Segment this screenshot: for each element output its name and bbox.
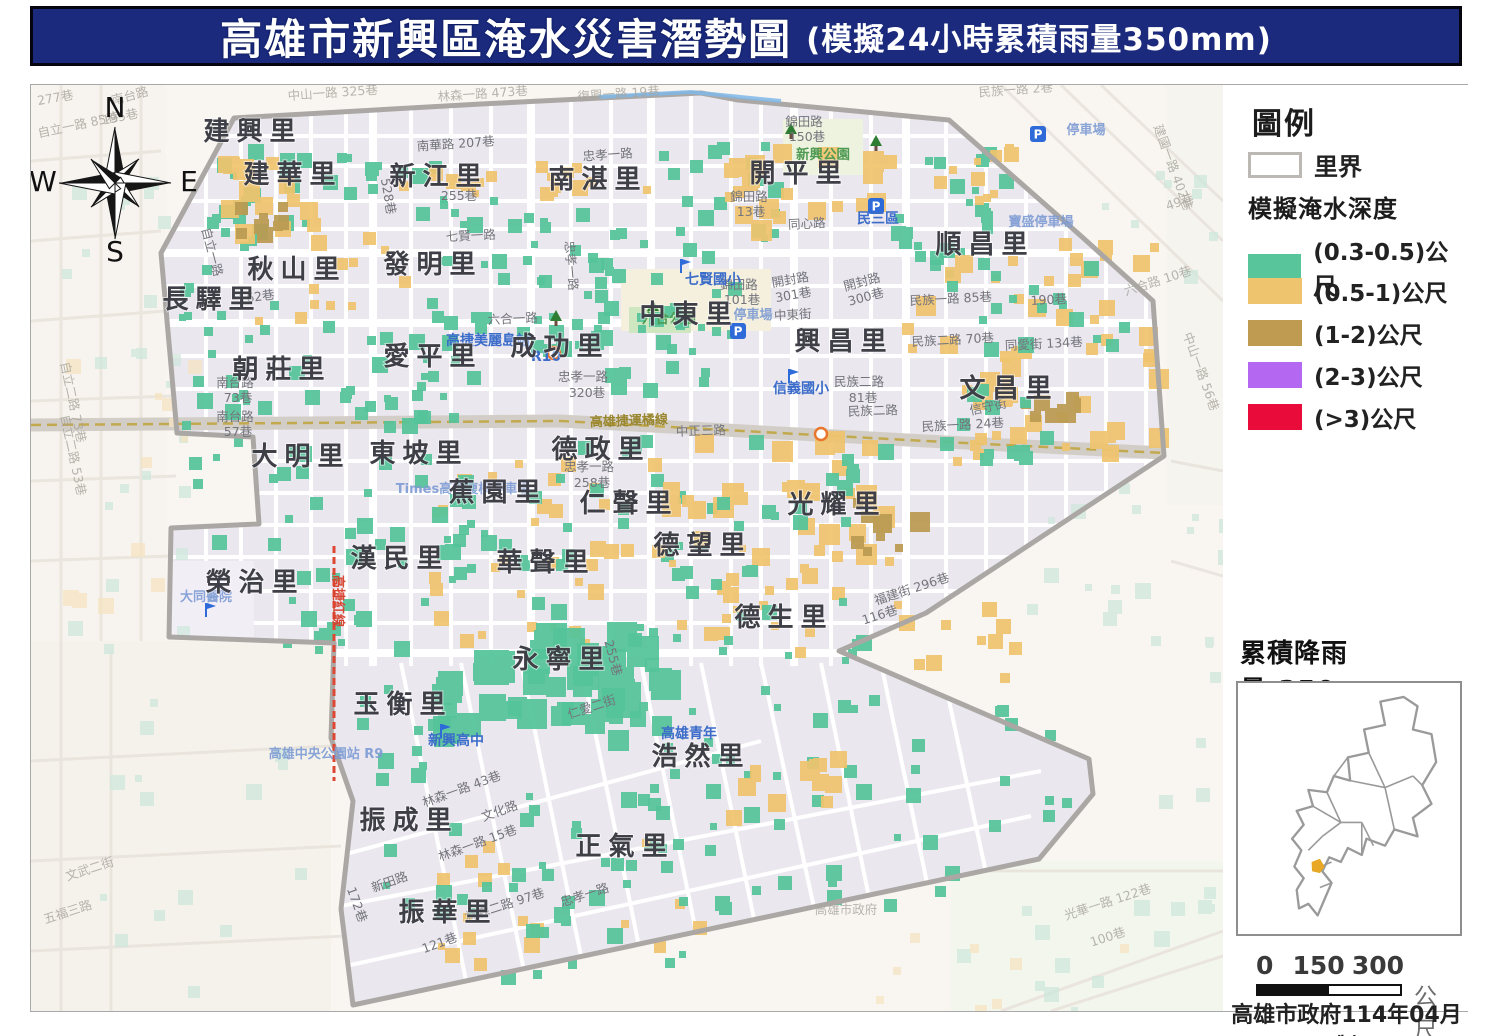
blue-label: 新興高中: [428, 732, 484, 749]
tree-trunk: [875, 146, 878, 151]
flood-cell: [575, 578, 583, 586]
st-label: 六合一路: [487, 310, 538, 328]
flood-cell: [533, 970, 542, 979]
flood-cell: [1010, 958, 1022, 970]
flood-cell: [311, 235, 327, 251]
parking-letter: P: [1034, 128, 1043, 142]
village-label: 新江里: [389, 161, 488, 192]
flood-cell: [923, 835, 938, 850]
flood-cell: [141, 457, 152, 468]
flood-cell: [992, 999, 1002, 1009]
flood-cell: [752, 886, 761, 895]
flood-cell: [676, 227, 685, 236]
village-label: 順昌里: [935, 230, 1034, 260]
flood-cell: [572, 319, 583, 330]
flood-cell: [451, 209, 459, 217]
flood-cell: [1068, 274, 1081, 287]
flood-cell: [463, 932, 476, 945]
depth-label-3: (2-3)公尺: [1314, 358, 1423, 392]
flood-cell: [105, 502, 113, 510]
flood-cell: [453, 534, 466, 547]
flood-cell: [706, 784, 721, 799]
flood-cell: [432, 507, 448, 523]
flood-cell: [710, 823, 717, 830]
flood-cell: [1022, 906, 1032, 916]
flood-cell: [744, 807, 760, 823]
village-label: 德望里: [653, 531, 752, 561]
flood-cell: [432, 583, 443, 594]
village-label: 浩然里: [651, 741, 750, 772]
st-label: 南台路: [216, 409, 254, 424]
flood-cell: [142, 471, 151, 480]
st-label: 73巷: [224, 390, 253, 405]
depth-label-2: (1-2)公尺: [1314, 316, 1423, 350]
flood-cell: [598, 312, 610, 324]
flood-cell: [726, 810, 742, 826]
st-label: 錦田路: [785, 114, 823, 129]
flood-cell: [445, 948, 460, 963]
bg-tint: [31, 641, 331, 1011]
flood-cell: [665, 958, 675, 968]
scale-bar: 0 150 300 公尺: [1256, 951, 1456, 996]
flood-cell: [612, 269, 626, 283]
flood-cell: [1156, 171, 1165, 180]
flood-cell: [287, 194, 300, 207]
flood-cell: [761, 686, 770, 695]
flood-cell: [934, 176, 947, 189]
flood-cell: [1196, 738, 1206, 748]
boundary-swatch: [1248, 152, 1302, 178]
flood-cell: [667, 344, 677, 354]
flood-cell: [935, 886, 946, 897]
flood-cell: [1093, 335, 1101, 343]
flag-pole: [680, 259, 682, 273]
flood-cell: [621, 920, 629, 928]
flood-cell: [941, 620, 951, 630]
flood-cell: [773, 772, 781, 780]
flood-cell: [643, 383, 658, 398]
flood-cell: [481, 535, 497, 551]
village-label: 榮治里: [205, 568, 304, 598]
st-label: 民族二路: [834, 374, 885, 389]
flood-cell: [515, 460, 523, 468]
flood-cell: [402, 418, 418, 434]
flood-cell: [814, 545, 825, 556]
flood-cell: [189, 457, 202, 470]
flood-cell: [997, 705, 1009, 717]
flood-cell: [532, 597, 545, 610]
blue-label: 民三區: [857, 211, 899, 227]
page-title: 高雄市新興區淹水災害潛勢圖: [220, 6, 792, 67]
flood-cell: [915, 251, 926, 262]
flood-cell: [411, 768, 426, 783]
flood-cell: [1062, 798, 1072, 808]
flood-cell: [1106, 339, 1119, 352]
flood-cell: [412, 390, 423, 401]
flood-cell: [394, 641, 410, 657]
flood-cell: [520, 813, 534, 827]
flood-cell: [115, 934, 128, 947]
flood-cell: [661, 861, 673, 873]
flood-cell: [1044, 276, 1054, 286]
page-subtitle: (模擬24小時累積雨量350mm): [806, 14, 1272, 59]
flood-cell: [950, 179, 965, 194]
flood-cell: [235, 202, 248, 215]
flood-cell: [659, 151, 669, 161]
flood-cell: [540, 218, 548, 226]
flood-cell: [679, 897, 688, 906]
flood-cell: [819, 524, 840, 545]
flood-cell: [839, 598, 847, 606]
flood-cell: [460, 221, 467, 228]
flood-cell: [773, 211, 786, 224]
flood-cell: [895, 544, 903, 552]
flood-cell: [1218, 550, 1223, 565]
flood-cell: [440, 393, 447, 400]
flood-cell: [651, 670, 681, 700]
flood-cell: [479, 694, 506, 721]
flood-cell: [68, 621, 83, 636]
flood-cell: [966, 199, 973, 206]
flood-cell: [1187, 527, 1194, 534]
flood-cell: [683, 243, 697, 257]
flood-cell: [682, 196, 693, 207]
flood-cell: [911, 765, 920, 774]
flood-cell: [131, 543, 145, 557]
flood-cell: [1043, 810, 1055, 822]
flood-cell: [376, 773, 389, 786]
flood-cell: [734, 521, 744, 531]
village-label: 秋山里: [247, 255, 346, 285]
flag-pole: [205, 603, 207, 617]
flood-cell: [349, 258, 358, 267]
flood-cell: [637, 624, 644, 631]
flood-cell: [1085, 584, 1092, 591]
bluef-label: 停車場: [733, 307, 772, 323]
flood-cell: [679, 951, 686, 958]
flood-cell: [179, 486, 190, 497]
flood-cell: [490, 197, 498, 205]
flood-cell: [991, 303, 1002, 314]
flood-cell: [1048, 517, 1055, 524]
st-label: 中正三路: [676, 422, 727, 439]
flood-cell: [63, 590, 79, 606]
flood-cell: [144, 295, 157, 308]
flood-cell: [563, 523, 572, 532]
flood-cell: [181, 435, 188, 442]
flood-cell: [1092, 976, 1104, 988]
flood-cell: [576, 208, 590, 222]
flood-cell: [254, 219, 269, 234]
flood-cell: [572, 821, 581, 830]
flood-cell: [104, 644, 114, 654]
flood-cell: [268, 538, 281, 551]
flood-cell: [323, 321, 335, 333]
village-label: 蕉園里: [448, 478, 547, 508]
flood-cell: [444, 316, 458, 330]
flood-cell: [991, 271, 1001, 281]
flood-cell: [680, 566, 693, 579]
flood-cell: [295, 868, 307, 880]
flood-cell: [1044, 568, 1059, 583]
flood-cell: [689, 348, 696, 355]
st-label: 57巷: [224, 424, 253, 439]
flood-cell: [690, 160, 703, 173]
st-label: 150巷: [789, 129, 826, 144]
flood-cell: [702, 251, 715, 264]
village-label: 東坡里: [369, 439, 468, 469]
flood-cell: [910, 933, 920, 943]
flood-cell: [357, 518, 373, 534]
depth-label-4: (>3)公尺: [1314, 400, 1416, 434]
flood-cell: [610, 230, 620, 240]
flood-cell: [774, 819, 785, 830]
flood-cell: [62, 269, 72, 279]
flood-cell: [154, 910, 165, 921]
village-label: 文昌里: [959, 373, 1058, 404]
flood-cell: [345, 528, 356, 539]
flood-cell: [1108, 600, 1122, 614]
village-label: 仁聲里: [579, 489, 678, 519]
flood-cell: [765, 586, 774, 595]
flood-cell: [830, 751, 847, 768]
flood-cell: [996, 619, 1011, 634]
flood-cell: [677, 620, 687, 630]
blue-label: 七賢國小: [685, 272, 741, 288]
flood-cell: [182, 421, 191, 430]
flood-cell: [869, 695, 880, 706]
flood-cell: [781, 188, 793, 200]
flood-cell: [828, 878, 837, 887]
flood-cell: [549, 504, 563, 518]
legend-row: (1-2)公尺: [1248, 316, 1423, 350]
flood-cell: [914, 242, 922, 250]
flood-map-canvas: PPP277巷南台路自立一路 85巷195巷中山一路 325巷林森一路 473巷…: [31, 85, 1223, 1011]
flood-cell: [314, 631, 323, 640]
mrt-station-icon: [815, 428, 827, 440]
flood-cell: [555, 604, 563, 612]
flood-cell: [176, 548, 188, 560]
flood-cell: [750, 765, 761, 776]
flood-cell: [883, 155, 897, 169]
flood-cell: [719, 647, 727, 655]
flood-cell: [1090, 315, 1099, 324]
flood-cell: [701, 368, 710, 377]
flood-cell: [307, 218, 321, 232]
flood-cell: [136, 348, 147, 359]
flood-cell: [155, 393, 162, 400]
flood-cell: [539, 862, 546, 869]
flood-cell: [621, 792, 637, 808]
flood-cell: [478, 631, 486, 639]
flood-cell: [348, 302, 356, 310]
flood-cell: [878, 444, 894, 460]
flood-cell: [326, 301, 335, 310]
flood-cell: [989, 820, 1001, 832]
flood-cell: [178, 890, 193, 905]
flood-cell: [270, 301, 279, 310]
village-label: 朝莊里: [232, 354, 331, 385]
flood-cell: [260, 325, 270, 335]
village-label: 長驛里: [162, 285, 261, 315]
flood-cell: [785, 652, 792, 659]
bluef-label: 高雄中央公園站 R9: [269, 746, 384, 762]
flood-cell: [315, 646, 323, 654]
flood-cell: [972, 187, 979, 194]
flood-cell: [384, 421, 396, 433]
district-line: [1334, 757, 1348, 776]
flood-cell: [838, 700, 851, 713]
flood-cell: [140, 721, 154, 735]
flood-cell: [1055, 958, 1070, 973]
flood-cell: [705, 845, 716, 856]
flood-cell: [717, 497, 730, 510]
flood-cell: [437, 873, 450, 886]
flood-cell: [278, 202, 288, 212]
boundary-label: 里界: [1314, 147, 1362, 182]
flood-cell: [338, 639, 345, 646]
flood-cell: [1030, 411, 1041, 422]
flood-cell: [914, 659, 925, 670]
flood-cell: [953, 457, 962, 466]
flood-cell: [774, 704, 781, 711]
flood-cell: [723, 587, 739, 603]
flood-cell: [1027, 604, 1038, 615]
flood-cell: [300, 202, 318, 220]
flood-cell: [449, 576, 456, 583]
st-label: 258巷: [574, 475, 611, 490]
flood-cell: [638, 794, 650, 806]
flood-cell: [340, 392, 351, 403]
flood-cell: [1159, 795, 1173, 809]
flood-cell: [498, 863, 510, 875]
flood-cell: [1151, 636, 1161, 646]
st-label: 七賢一路: [445, 227, 496, 245]
flood-cell: [531, 518, 539, 526]
flood-cell: [884, 899, 897, 912]
flood-cell: [607, 928, 623, 944]
flood-cell: [699, 377, 709, 387]
flood-cell: [517, 699, 547, 729]
flood-cell: [651, 474, 664, 487]
flood-cell: [316, 568, 330, 582]
flood-cell: [761, 142, 770, 151]
village-label: 德生里: [734, 603, 833, 633]
flood-cell: [481, 530, 488, 537]
flood-cell: [1198, 900, 1212, 914]
flood-cell: [509, 883, 518, 892]
mrt-label: 高雄捷運橘線: [590, 412, 670, 431]
flood-cell: [1084, 261, 1099, 276]
flood-cell: [539, 275, 552, 288]
flood-cell: [1040, 431, 1054, 445]
depth-heading: 模擬淹水深度: [1248, 189, 1398, 224]
flood-cell: [474, 958, 487, 971]
flood-cell: [979, 316, 987, 324]
flood-cell: [618, 518, 629, 529]
flood-cell: [274, 215, 289, 230]
village-label: 中東里: [639, 300, 738, 330]
flood-cell: [536, 161, 548, 173]
flood-cell: [584, 291, 592, 299]
st-label: 190巷: [1030, 291, 1068, 308]
flood-cell: [197, 393, 213, 409]
flood-cell: [726, 573, 739, 586]
flood-cell: [980, 453, 993, 466]
scale-tick-0: 0: [1256, 951, 1273, 980]
flood-cell: [1209, 232, 1218, 241]
flood-cell: [82, 249, 90, 257]
st-label: 忠孝一路: [558, 369, 609, 384]
flood-cell: [523, 256, 532, 265]
flood-cell: [850, 705, 858, 713]
legend-boundary-row: 里界: [1248, 147, 1362, 182]
scale-tick-150: 150: [1293, 951, 1345, 980]
flood-cell: [668, 168, 680, 180]
flood-cell: [344, 154, 352, 162]
village-label: 漢民里: [350, 544, 449, 574]
flood-cell: [1171, 902, 1185, 916]
flood-cell: [1194, 175, 1207, 188]
depth-swatch-4: [1248, 404, 1302, 430]
st-label: 13巷: [737, 204, 766, 219]
blue-label: 高雄青年: [661, 725, 717, 742]
scale-bar-fill: [1258, 986, 1329, 994]
flood-cell: [213, 454, 220, 461]
village-label: 永寧里: [512, 644, 611, 675]
flood-cell: [656, 808, 668, 820]
flood-cell: [724, 636, 733, 645]
flood-cell: [1107, 422, 1125, 440]
flood-cell: [876, 532, 885, 541]
flood-cell: [1131, 220, 1139, 228]
flood-cell: [295, 312, 307, 324]
flood-cell: [649, 628, 658, 637]
village-label: 德政里: [551, 434, 650, 465]
flood-cell: [992, 431, 1001, 440]
flood-cell: [524, 213, 534, 223]
flood-cell: [269, 474, 278, 483]
village-label: 開平里: [749, 159, 848, 189]
flood-cell: [542, 869, 554, 881]
flood-cell: [1090, 431, 1108, 449]
flood-cell: [428, 371, 439, 382]
flood-cell: [218, 156, 235, 173]
locator-inset: [1236, 681, 1462, 936]
flood-cell: [746, 565, 758, 577]
flood-cell: [1111, 585, 1120, 594]
flood-cell: [971, 172, 985, 186]
village-label: 光耀里: [786, 490, 886, 520]
flood-cell: [1192, 189, 1202, 199]
flood-cell: [188, 986, 200, 998]
flood-cell: [768, 794, 786, 812]
flood-cell: [449, 413, 459, 423]
flood-cell: [650, 784, 659, 793]
flood-cell: [786, 578, 798, 590]
flood-cell: [414, 726, 423, 735]
content-frame: PPP277巷南台路自立一路 85巷195巷中山一路 325巷林森一路 473巷…: [30, 84, 1468, 1012]
compass-letter-w: W: [31, 165, 57, 198]
flood-cell: [893, 967, 901, 975]
flood-cell: [412, 746, 422, 756]
flood-cell: [711, 579, 722, 590]
flood-cell: [140, 792, 154, 806]
flood-cell: [1086, 343, 1098, 355]
flood-cell: [688, 501, 706, 519]
flood-cell: [842, 454, 854, 466]
flood-cell: [368, 184, 378, 194]
